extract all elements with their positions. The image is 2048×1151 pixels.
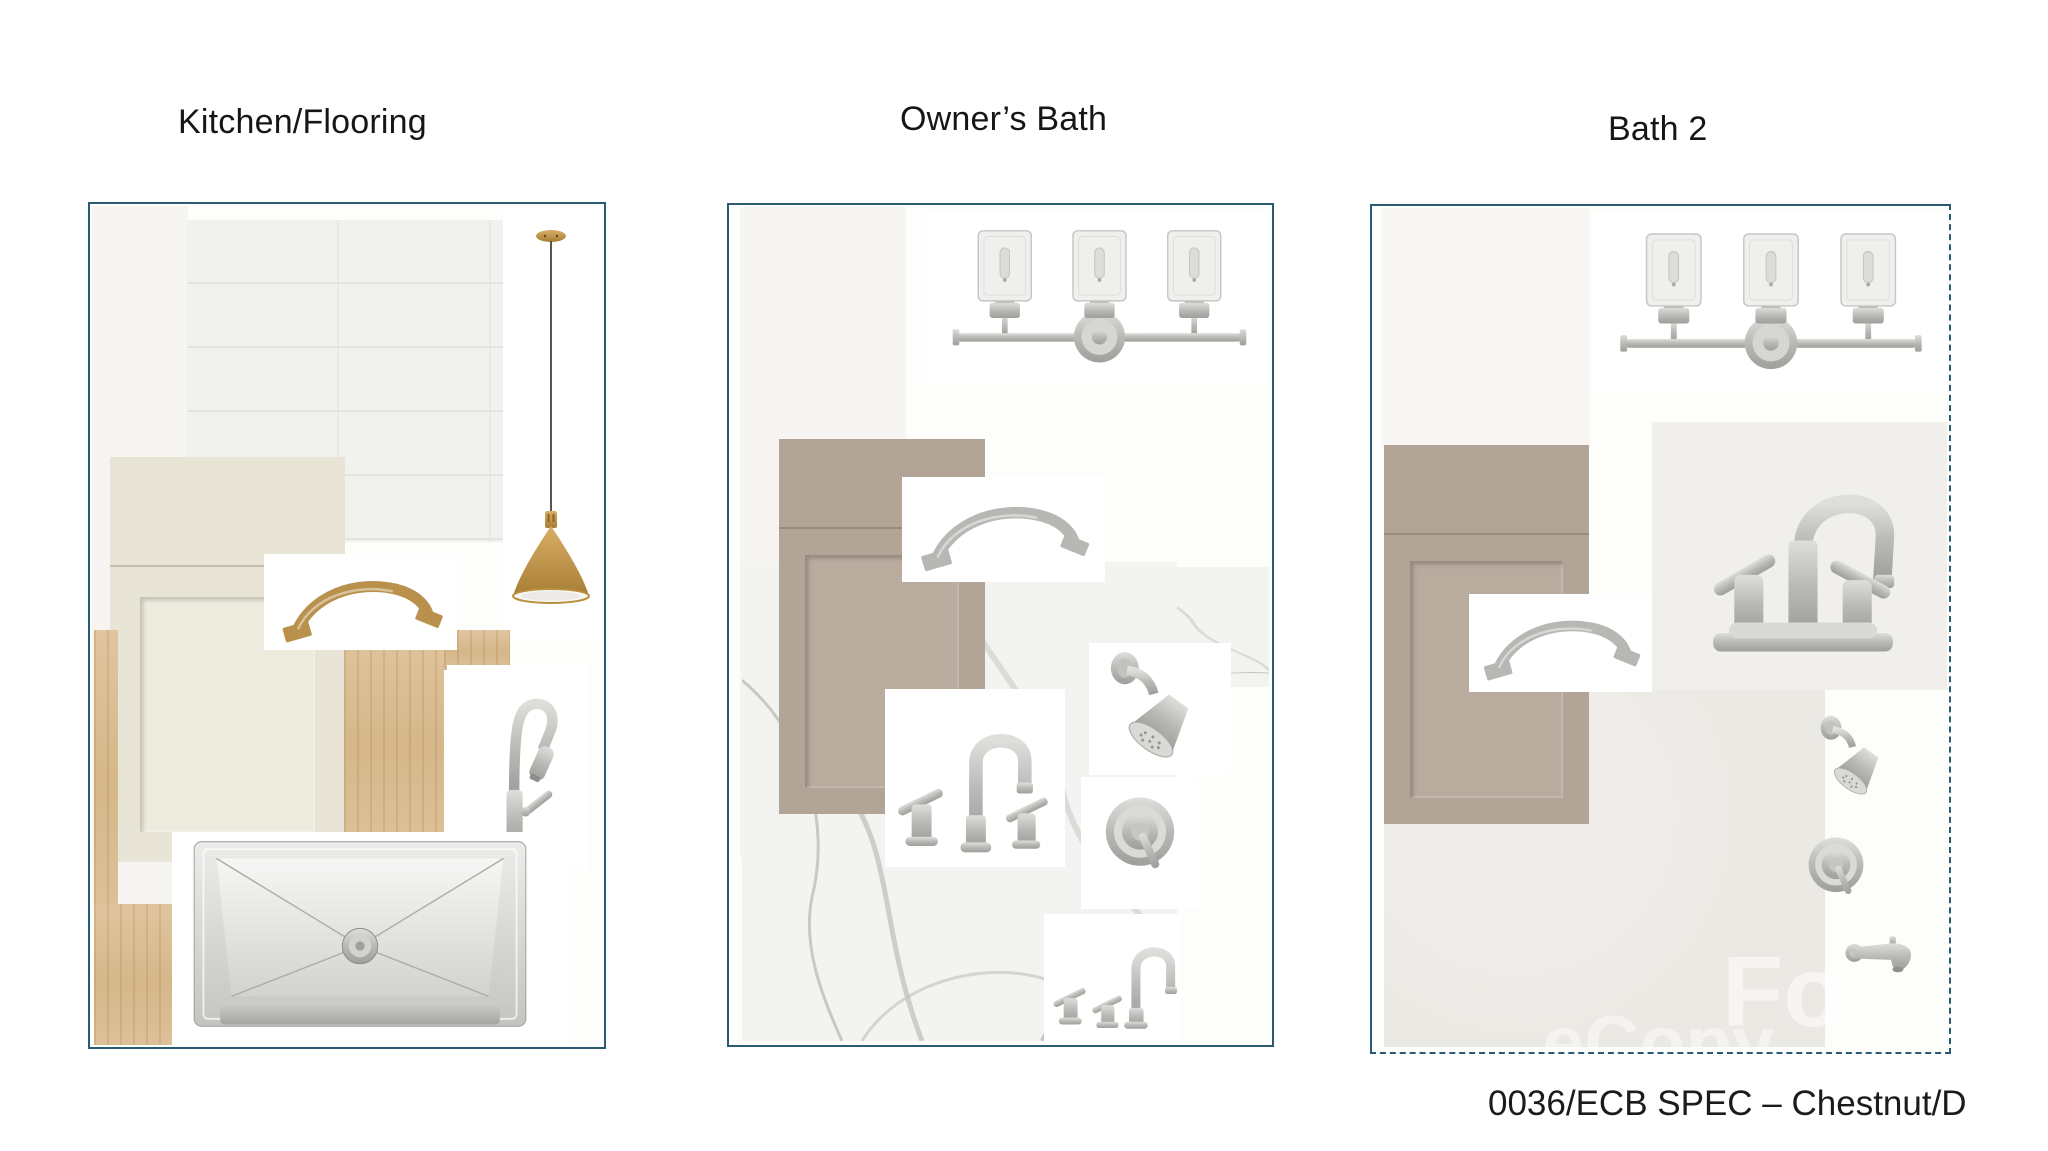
kitchen-flooring-board xyxy=(88,202,606,1049)
photo-watermark-secondary: eCopy xyxy=(1542,1006,1774,1054)
wall-swatch xyxy=(1382,208,1590,448)
owners-bath-board xyxy=(727,203,1274,1047)
shower-valve-trim-image xyxy=(1095,791,1185,883)
brushed-nickel-cabinet-pull-image xyxy=(1477,602,1644,684)
widespread-lavatory-faucet-image xyxy=(889,697,1061,861)
bath-2-board: Fo eCopy xyxy=(1370,204,1951,1054)
shower-head-image xyxy=(1103,651,1211,769)
shower-valve-trim-image xyxy=(1800,832,1872,906)
brass-arch-cabinet-pull-image xyxy=(274,562,448,646)
panel-title-kitchen-flooring: Kitchen/Flooring xyxy=(178,103,427,142)
centerset-lavatory-faucet-image xyxy=(1684,450,1922,668)
spec-sheet-page: Kitchen/Flooring Owner’s Bath Bath 2 xyxy=(0,0,2048,1151)
panel-title-bath-2: Bath 2 xyxy=(1608,110,1708,149)
spec-footer-label: 0036/ECB SPEC – Chestnut/D xyxy=(1488,1084,1967,1124)
panel-title-owners-bath: Owner’s Bath xyxy=(900,100,1107,139)
stainless-undermount-sink-image xyxy=(184,838,536,1043)
tub-spout-image xyxy=(1844,930,1920,980)
three-light-vanity-light-image xyxy=(929,219,1270,379)
brass-cone-pendant-light-image xyxy=(501,220,601,620)
shower-head-image xyxy=(1815,714,1895,804)
roman-tub-faucet-image xyxy=(1047,919,1179,1037)
three-light-vanity-light-image xyxy=(1596,222,1946,386)
oak-flooring-plank-left-narrow xyxy=(94,630,118,906)
brushed-nickel-cabinet-pull-image xyxy=(912,487,1095,575)
cabinet-rail-divider xyxy=(1384,533,1589,535)
cream-shaker-cabinet-door xyxy=(110,457,345,862)
oak-flooring-plank-left-wide xyxy=(94,904,172,1045)
oak-flooring-plank-right xyxy=(344,630,444,839)
